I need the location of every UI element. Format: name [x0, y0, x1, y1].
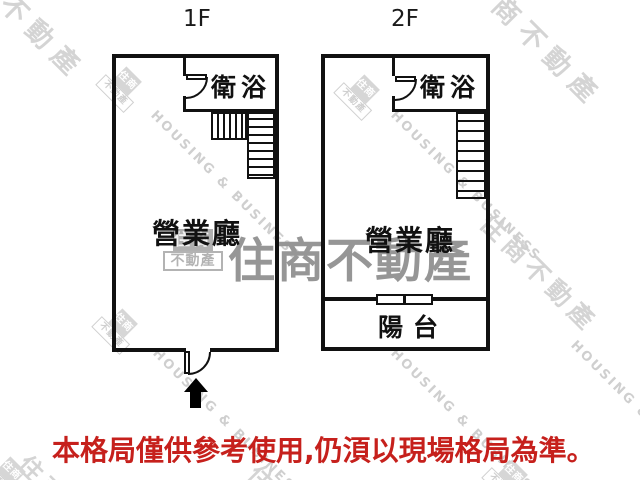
disclaimer-text: 本格局僅供參考使用,仍湏以現場格局為準。 [52, 429, 612, 469]
door-arcs-overlay [0, 0, 640, 480]
balcony-window-pane [376, 294, 405, 305]
bathroom-door-1f [186, 74, 207, 80]
stairs-1f-right-run [247, 112, 275, 179]
floorplan-image: 不動產 商不動產 住商不動產 住商 住 HOUSING & BUSINESS H… [0, 0, 640, 480]
balcony-window-pane [404, 294, 433, 305]
door-arc-icon [188, 352, 210, 374]
room-label-hall-1f: 營業廳 [152, 212, 242, 252]
wall [392, 96, 395, 109]
wall [392, 58, 395, 76]
room-label-balcony-2f: 陽台 [378, 308, 448, 344]
plan-layer: 1F 2F 衛浴 營業廳 衛浴 營業廳 [0, 0, 640, 480]
floor-label-2f: 2F [391, 6, 419, 32]
bathroom-door-2f [395, 76, 416, 82]
wall [183, 96, 186, 109]
room-label-bathroom-2f: 衛浴 [420, 68, 480, 104]
entrance-door-1f [184, 351, 190, 374]
arrow-head [184, 378, 208, 392]
stairs-2f-run [456, 112, 486, 199]
floor-label-1f: 1F [183, 6, 211, 32]
arrow-shaft [190, 392, 201, 408]
room-label-hall-2f: 營業廳 [365, 219, 455, 259]
room-label-bathroom-1f: 衛浴 [211, 68, 271, 104]
stairs-1f-upper-run [211, 112, 247, 140]
